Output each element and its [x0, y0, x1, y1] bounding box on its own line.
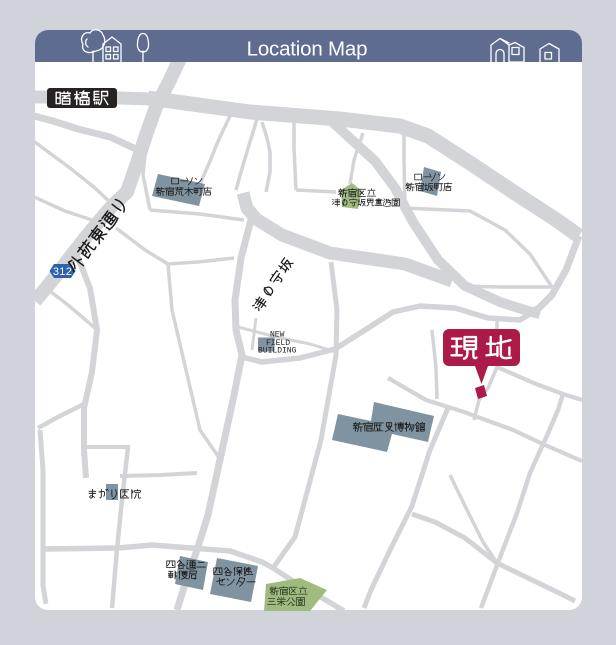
svg-text:Location Map: Location Map: [247, 38, 368, 61]
svg-text:BUILDING: BUILDING: [258, 347, 297, 356]
svg-text:312: 312: [53, 266, 72, 278]
